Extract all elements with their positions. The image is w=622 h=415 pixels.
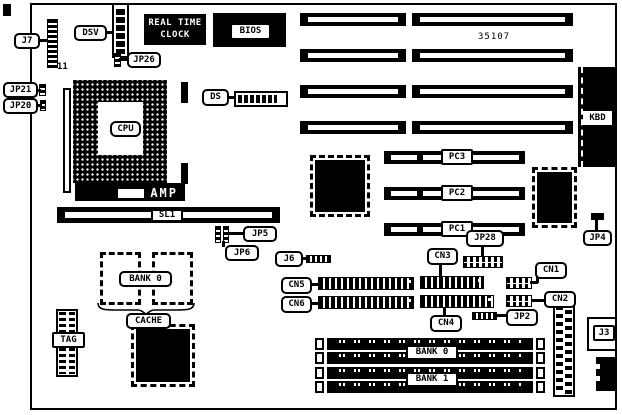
arm-cn3 xyxy=(439,264,442,277)
simm-clip xyxy=(315,338,324,350)
label-cpu: CPU xyxy=(110,121,141,137)
label-jp2: JP2 xyxy=(506,309,538,326)
label-cn3: CN3 xyxy=(427,248,458,265)
label-cn6: CN6 xyxy=(281,296,312,313)
label-j3: J3 xyxy=(593,325,615,341)
socket-right-bar-top xyxy=(181,82,188,103)
bios-label: BIOS xyxy=(231,24,270,39)
rtc-line2: CLOCK xyxy=(160,30,190,42)
simm-clip xyxy=(315,367,324,379)
isa-slot-1-short xyxy=(300,13,406,26)
label-jp5: JP5 xyxy=(243,226,277,242)
chipset-chip-right xyxy=(537,172,572,223)
label-cache-bank0: BANK 0 xyxy=(119,271,172,287)
cn4-connector xyxy=(420,295,494,308)
kbd-label: KBD xyxy=(583,111,612,125)
isa-slot-4-long xyxy=(412,121,573,134)
socket-right-bar-bottom xyxy=(181,163,188,184)
rtc-line1: REAL TIME xyxy=(148,18,201,30)
rtc-chip: REAL TIME CLOCK xyxy=(144,14,206,45)
label-ds: DS xyxy=(202,89,229,106)
dsv-stripes xyxy=(116,7,125,54)
jp2-header xyxy=(472,312,497,320)
label-pc3: PC3 xyxy=(441,149,473,165)
label-tag: TAG xyxy=(52,332,85,348)
isa-slot-2-short xyxy=(300,49,406,62)
power-connector xyxy=(553,303,575,397)
isa-slot-2-long xyxy=(412,49,573,62)
label-cn1: CN1 xyxy=(535,262,567,279)
label-cache: CACHE xyxy=(126,313,171,329)
din-connector xyxy=(596,357,617,391)
simm-clip xyxy=(536,352,545,364)
isa-slot-4-short xyxy=(300,121,406,134)
motherboard-diagram: J7 11 DSV REAL TIME CLOCK JP26 BIOS 3510… xyxy=(0,0,622,415)
ds-stripes xyxy=(238,95,277,103)
cn1-connector xyxy=(506,277,532,289)
label-cn2: CN2 xyxy=(544,291,576,308)
label-sl1: SL1 xyxy=(151,209,183,222)
isa-slot-3-short xyxy=(300,85,406,98)
label-simm-bank1: BANK 1 xyxy=(406,372,458,387)
isa-slot-1-long xyxy=(412,13,573,26)
simm-clip xyxy=(536,338,545,350)
j7-header xyxy=(47,19,58,68)
label-jp20: JP20 xyxy=(3,98,38,114)
j7-pin-count: 11 xyxy=(57,62,68,72)
cn3-connector xyxy=(420,276,484,289)
simm-clip xyxy=(315,381,324,393)
isa-slot-3-long xyxy=(412,85,573,98)
label-jp21: JP21 xyxy=(3,82,38,98)
amp-bar: AMP xyxy=(75,183,185,201)
arm-jp5 xyxy=(228,232,244,235)
simm-clip xyxy=(536,381,545,393)
cn5-connector xyxy=(318,277,414,290)
corner-mark xyxy=(3,4,11,16)
amp-label: AMP xyxy=(150,186,178,200)
arm-jp28 xyxy=(481,246,484,257)
jp28-block xyxy=(463,256,503,268)
board-number: 35107 xyxy=(478,32,510,42)
label-cn5: CN5 xyxy=(281,277,312,294)
ds-package xyxy=(234,91,288,107)
label-jp4: JP4 xyxy=(583,230,612,246)
asic-chip xyxy=(136,329,190,382)
cn6-connector xyxy=(318,296,414,309)
label-j7: J7 xyxy=(14,33,40,49)
dsv-package xyxy=(112,3,129,58)
chipset-chip-left xyxy=(315,160,365,212)
label-cn4: CN4 xyxy=(430,315,462,332)
label-pc2: PC2 xyxy=(441,185,473,201)
socket-left-bar xyxy=(63,88,71,193)
simm-clip xyxy=(536,367,545,379)
label-jp26: JP26 xyxy=(127,52,161,68)
label-jp6: JP6 xyxy=(225,245,259,261)
label-jp28: JP28 xyxy=(466,230,504,247)
label-j6: J6 xyxy=(275,251,303,267)
simm-clip xyxy=(315,352,324,364)
j6-header xyxy=(306,255,331,263)
cn2-connector xyxy=(506,295,532,307)
label-simm-bank0: BANK 0 xyxy=(406,345,458,360)
arm-jp6 xyxy=(222,241,225,247)
label-dsv: DSV xyxy=(74,25,107,41)
